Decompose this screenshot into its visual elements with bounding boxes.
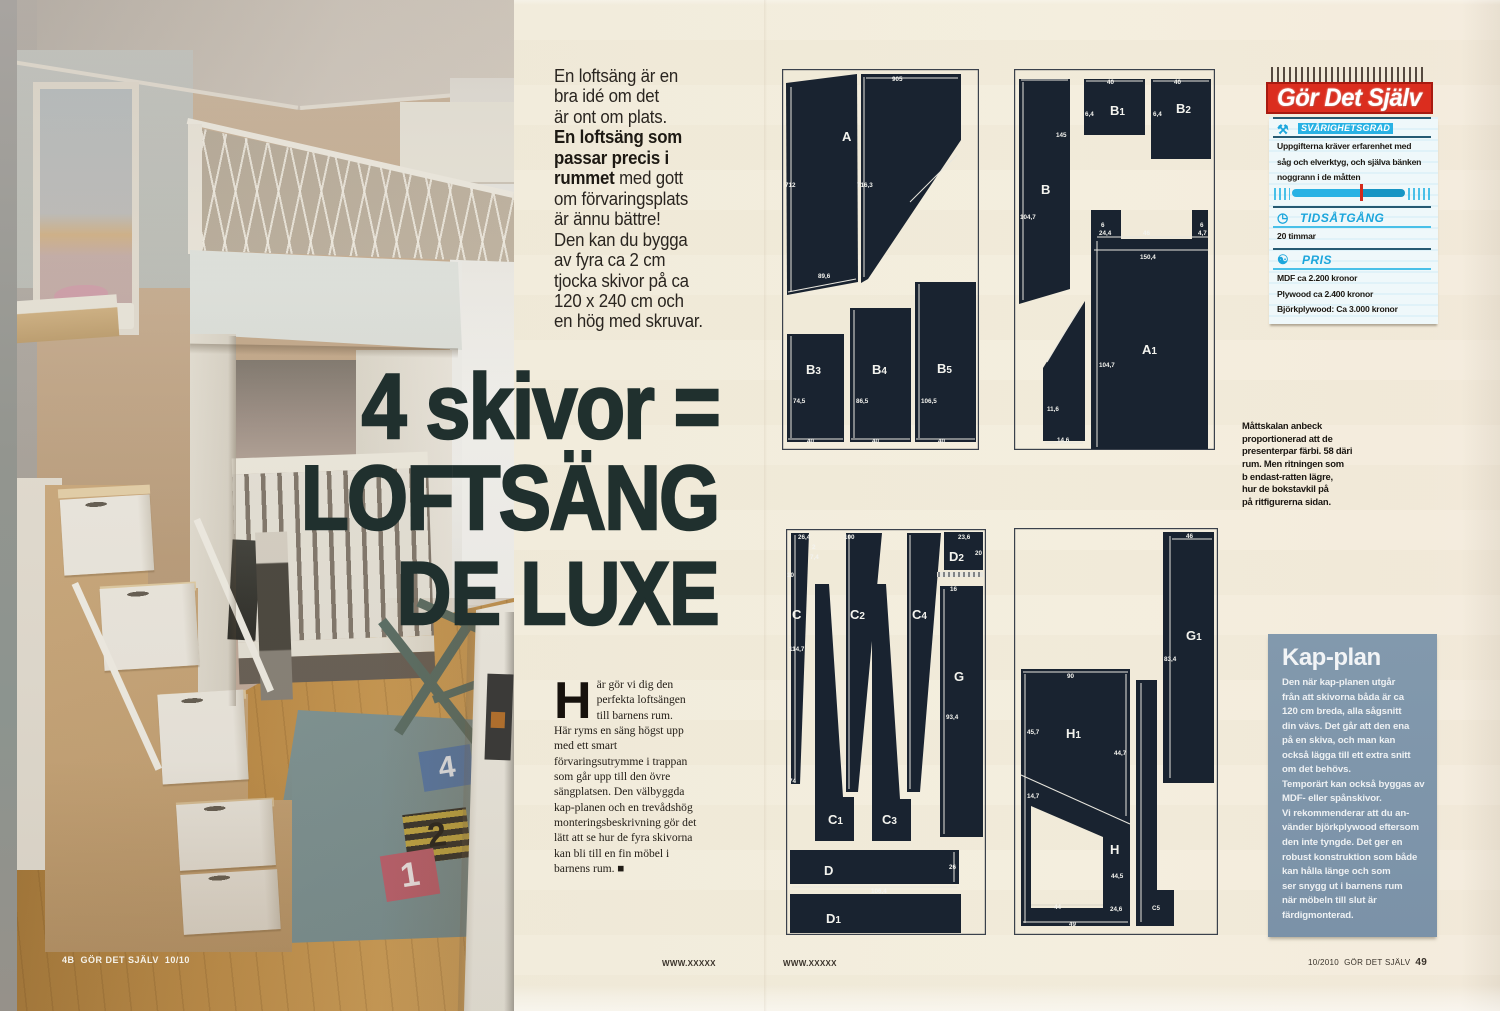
svg-text:106,4: 106,4 <box>871 888 887 895</box>
svg-text:A: A <box>842 129 852 144</box>
svg-text:83,4: 83,4 <box>1164 656 1177 663</box>
svg-text:14,7: 14,7 <box>1027 793 1040 800</box>
svg-text:6,4: 6,4 <box>1085 111 1094 118</box>
svg-text:90: 90 <box>1067 673 1075 680</box>
svg-text:49: 49 <box>1069 921 1077 928</box>
svg-text:2: 2 <box>812 544 816 551</box>
svg-text:44,7: 44,7 <box>1114 750 1127 757</box>
svg-text:86,5: 86,5 <box>856 398 869 405</box>
svg-text:46: 46 <box>1143 230 1151 237</box>
svg-text:145: 145 <box>1056 132 1067 139</box>
svg-text:44: 44 <box>1054 904 1062 911</box>
svg-text:14,6: 14,6 <box>1057 437 1070 444</box>
svg-text:74: 74 <box>789 778 797 785</box>
svg-text:10: 10 <box>787 572 795 579</box>
svg-text:106,5: 106,5 <box>921 398 937 405</box>
svg-text:6: 6 <box>1200 222 1204 229</box>
svg-text:23,6: 23,6 <box>958 534 971 541</box>
svg-text:40: 40 <box>938 438 946 445</box>
svg-text:150,4: 150,4 <box>1140 254 1156 261</box>
svg-text:24,6: 24,6 <box>1110 906 1123 913</box>
svg-text:4,7: 4,7 <box>1198 230 1207 237</box>
svg-text:B: B <box>1041 182 1050 197</box>
svg-text:16: 16 <box>950 586 958 593</box>
svg-text:20: 20 <box>975 550 983 557</box>
svg-text:C: C <box>792 607 802 622</box>
svg-text:24,4: 24,4 <box>1099 230 1112 237</box>
svg-text:44,5: 44,5 <box>1111 873 1124 880</box>
svg-text:46: 46 <box>1186 533 1194 540</box>
svg-text:26: 26 <box>949 864 957 871</box>
svg-text:74,5: 74,5 <box>793 398 806 405</box>
svg-text:45,7: 45,7 <box>1027 729 1040 736</box>
svg-text:D: D <box>824 863 833 878</box>
svg-text:6,4: 6,4 <box>1153 111 1162 118</box>
svg-text:89,6: 89,6 <box>818 273 831 280</box>
svg-text:6: 6 <box>1101 222 1105 229</box>
svg-text:11,6: 11,6 <box>1047 406 1059 413</box>
svg-text:93,4: 93,4 <box>946 714 959 721</box>
svg-text:40: 40 <box>1174 79 1182 86</box>
svg-text:40: 40 <box>1107 79 1115 86</box>
svg-text:26,4: 26,4 <box>798 534 811 541</box>
svg-text:7,4: 7,4 <box>810 554 819 561</box>
svg-text:40: 40 <box>872 438 880 445</box>
svg-text:H: H <box>1110 842 1119 857</box>
svg-text:C5: C5 <box>1152 905 1161 912</box>
svg-text:104,7: 104,7 <box>1099 362 1115 369</box>
svg-text:40: 40 <box>807 438 815 445</box>
svg-text:100: 100 <box>844 534 855 541</box>
svg-text:905: 905 <box>892 76 903 83</box>
svg-text:104,7: 104,7 <box>1020 214 1036 221</box>
svg-text:114,7: 114,7 <box>789 646 805 653</box>
svg-text:G: G <box>954 669 964 684</box>
svg-text:712: 712 <box>785 182 796 189</box>
svg-text:716,3: 716,3 <box>857 182 873 189</box>
